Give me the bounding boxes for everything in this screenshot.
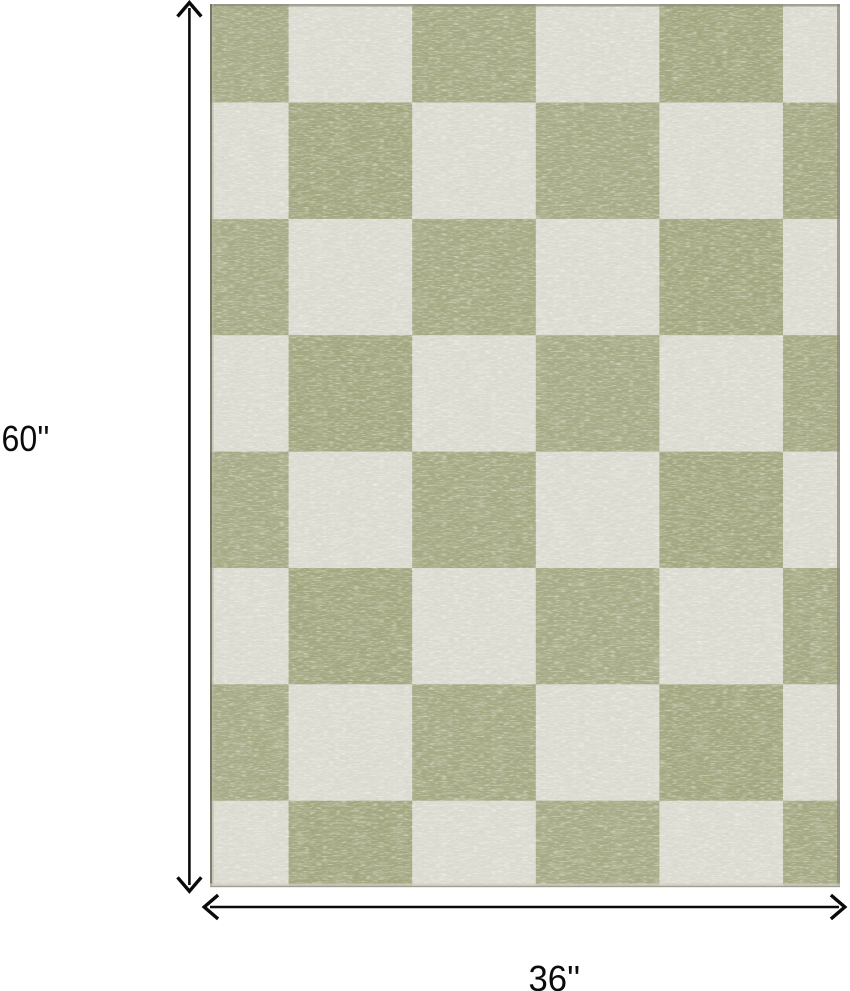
svg-text:60'': 60'' — [2, 419, 50, 459]
svg-text:36'': 36'' — [529, 958, 581, 991]
